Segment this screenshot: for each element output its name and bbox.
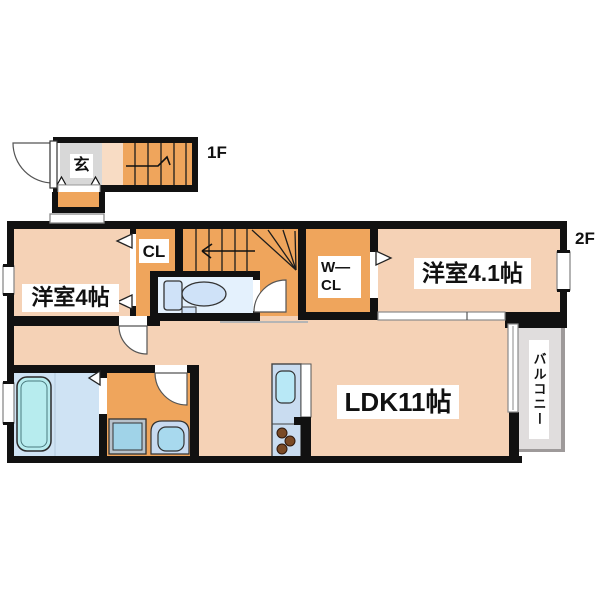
room-label-ldk: LDK11帖 [337, 385, 459, 419]
wall-toilet-bottom [150, 313, 260, 321]
stair-landing-1f [102, 143, 123, 185]
stove-burner-icon [277, 444, 287, 454]
balcony-outside [516, 452, 565, 463]
floor-plan-canvas: 1F 2F 玄 CL W— CL 洋室4帖 洋室4.1帖 LDK11帖 バルコニ… [0, 0, 600, 600]
toilet-paper-holder-icon [182, 307, 196, 314]
room-label-closet: CL [139, 239, 169, 263]
room-label-western-room-4: 洋室4帖 [22, 284, 119, 312]
unit-1f [13, 137, 198, 223]
window-cap [557, 289, 570, 292]
wcl-label-line1: W— [321, 259, 350, 277]
entry-door-panel [50, 141, 57, 188]
room-label-western-room-4-1: 洋室4.1帖 [414, 258, 531, 289]
toilet-bowl-icon [182, 282, 226, 306]
wall-closet-stairs [175, 229, 183, 272]
room-label-entrance: 玄 [70, 154, 93, 178]
toilet-tank-icon [164, 281, 182, 310]
window-bath-left [3, 383, 14, 423]
wall-left [7, 221, 14, 463]
window-cap [3, 422, 14, 425]
wall-room4-bottom [7, 316, 119, 326]
porch-floor [58, 192, 99, 207]
window-above-entrance [50, 214, 104, 223]
sliding-window-room41 [378, 312, 505, 320]
door-arc-entry [13, 143, 53, 183]
window-cap [3, 264, 14, 267]
wall-washroom-ldk [190, 365, 199, 463]
balcony-rail-right [561, 322, 565, 453]
window-cap [557, 250, 570, 253]
wall-room4-bottom-right [147, 316, 160, 326]
window-cap [3, 381, 14, 384]
wall-ldk-right-lower [509, 412, 519, 463]
floor-label-1f: 1F [207, 143, 227, 161]
kitchen-counter-edge [301, 364, 311, 417]
window-room41-right [557, 252, 570, 290]
stairs-1f-area [123, 143, 192, 185]
wcl-label-line2: CL [321, 277, 341, 295]
entrance-step [58, 185, 100, 193]
balcony-rail-bottom [516, 449, 565, 452]
closet-area-strip [136, 272, 150, 316]
washroom-doorway [155, 365, 187, 373]
wall-wcl-bottom [298, 312, 378, 320]
wall-stairs-wcl [298, 229, 306, 320]
wall-bottom [7, 456, 522, 463]
stove-burner-icon [277, 428, 287, 438]
vanity-bowl-icon [158, 427, 184, 451]
room4-doorway [119, 316, 147, 326]
floor-label-2f: 2F [575, 229, 595, 247]
stove-burner-icon [285, 436, 295, 446]
wall-kitchen-notch [294, 417, 311, 425]
room-label-balcony: バルコニー [529, 340, 549, 439]
wall-toilet-top [150, 271, 260, 277]
window-cap [3, 293, 14, 296]
washing-machine-icon [113, 423, 142, 450]
room-label-walk-in-closet: W— CL [318, 256, 361, 298]
bathtub-icon [17, 377, 51, 451]
window-room4-left [3, 266, 14, 294]
hall-ldk-threshold [220, 321, 308, 323]
kitchen-sink-icon [276, 371, 295, 403]
